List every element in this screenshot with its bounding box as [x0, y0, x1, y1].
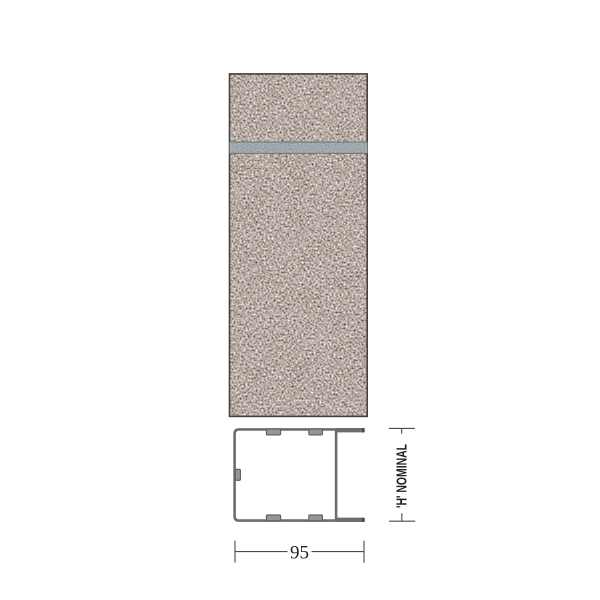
- svg-text:'H' NOMINAL: 'H' NOMINAL: [394, 444, 410, 508]
- svg-text:95: 95: [290, 543, 309, 564]
